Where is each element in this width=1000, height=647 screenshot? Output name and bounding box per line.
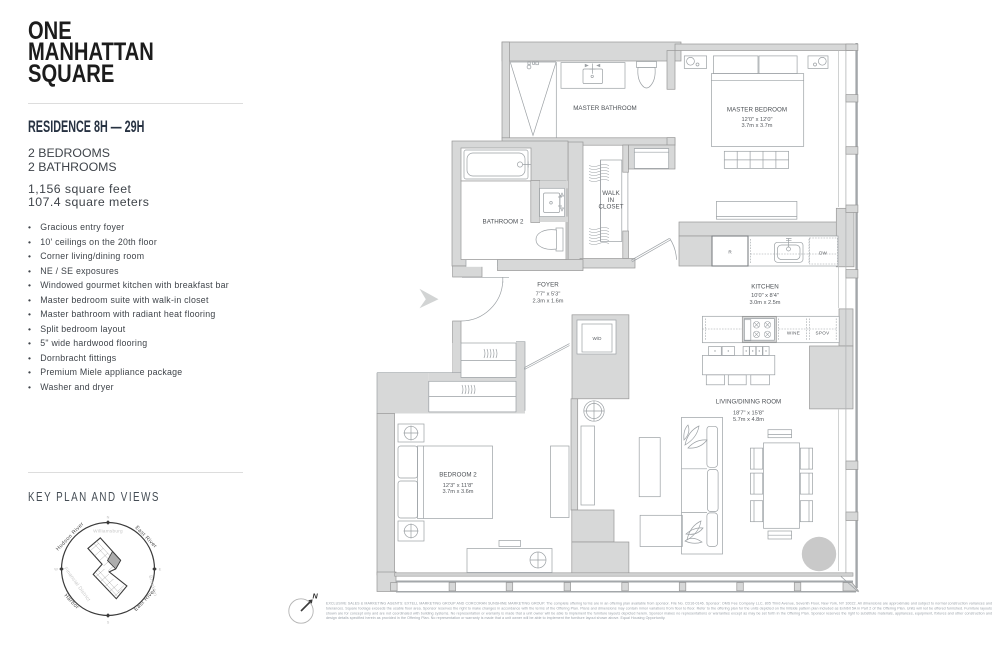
svg-text:BATHROOM 2: BATHROOM 2 [483, 219, 524, 226]
svg-text:KITCHEN: KITCHEN [751, 283, 779, 290]
svg-text:2.3m x 1.6m: 2.3m x 1.6m [532, 298, 563, 304]
svg-text:CLOSET: CLOSET [598, 204, 623, 211]
svg-text:5.7m x 4.8m: 5.7m x 4.8m [733, 417, 764, 423]
svg-text:Harbor: Harbor [63, 593, 80, 611]
svg-text:N: N [107, 516, 110, 520]
svg-text:DW: DW [819, 251, 827, 256]
svg-text:East River: East River [134, 525, 158, 550]
svg-text:18'7" x 15'8": 18'7" x 15'8" [733, 411, 764, 417]
svg-text:3.7m x 3.6m: 3.7m x 3.6m [442, 489, 473, 495]
svg-text:3.0m x 2.5m: 3.0m x 2.5m [749, 300, 780, 306]
svg-text:10'0" x 8'4": 10'0" x 8'4" [751, 293, 779, 299]
svg-text:WINE: WINE [787, 331, 800, 336]
svg-text:FOYER: FOYER [537, 282, 559, 289]
svg-text:LIVING/DINING ROOM: LIVING/DINING ROOM [716, 399, 782, 406]
svg-text:W: W [54, 567, 58, 571]
svg-text:BEDROOM 2: BEDROOM 2 [439, 472, 477, 479]
svg-text:W/D: W/D [593, 336, 603, 341]
svg-text:Williamsburg: Williamsburg [93, 529, 123, 534]
svg-text:E: E [159, 567, 162, 571]
svg-text:MASTER BATHROOM: MASTER BATHROOM [573, 105, 637, 112]
svg-text:MASTER BEDROOM: MASTER BEDROOM [727, 107, 787, 114]
svg-text:N: N [313, 592, 319, 601]
svg-text:S: S [107, 621, 110, 625]
svg-text:SPOV: SPOV [816, 331, 831, 336]
svg-text:7'7" x 5'3": 7'7" x 5'3" [536, 292, 561, 298]
svg-text:3.7m x 3.7m: 3.7m x 3.7m [741, 123, 772, 129]
svg-text:Hudson River: Hudson River [55, 521, 85, 552]
